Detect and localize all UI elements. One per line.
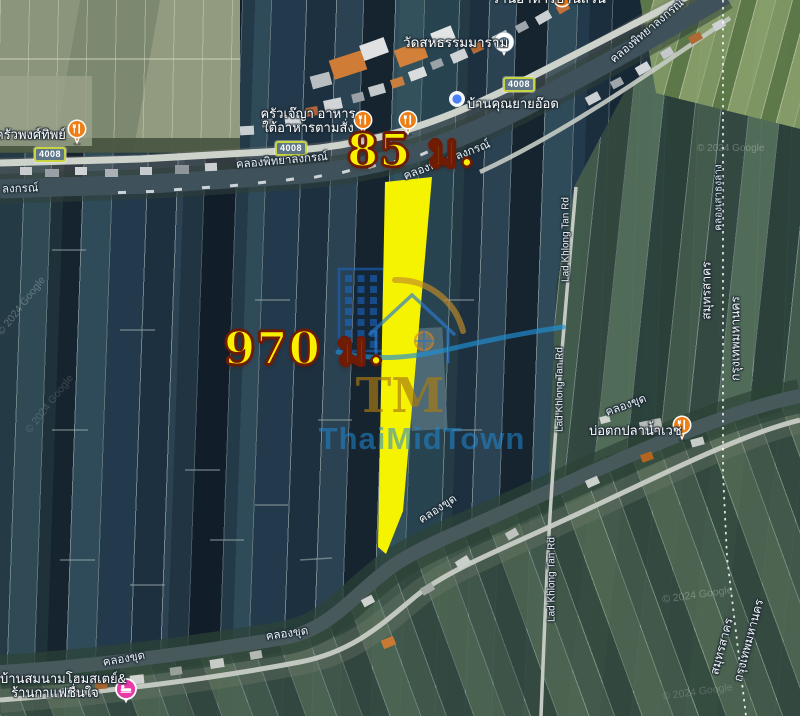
satellite-map[interactable]: ร้านอาหารบ้านสวน วัดสหธรรมมาราม บ้านคุณย… <box>0 0 800 716</box>
home-label[interactable]: บ้านคุณยายอ๊อด <box>467 93 559 114</box>
canal-label: คลองเสาธงล่าง <box>712 148 727 248</box>
temple-label[interactable]: วัดสหธรรมมาราม <box>403 31 508 53</box>
home-dot-marker-icon[interactable] <box>449 91 465 107</box>
restaurant-label[interactable]: ครัวเจ๊ญา อาหาร ใต้อาหารตามสั่ง <box>258 107 358 135</box>
road-label: Lad Khlong Tan Rd <box>561 190 572 290</box>
canal-label-fragment: ลงกรณ์ <box>2 179 39 198</box>
map-drawing-layer <box>0 0 800 716</box>
width-measurement: 85 ม. <box>347 114 476 186</box>
restaurant-label[interactable]: ครัวพงศ์ทิพย์ <box>0 124 66 145</box>
road-label: Lad Khlong Tan Rd <box>547 530 558 630</box>
route-badge-4008[interactable]: 4008 <box>503 77 535 92</box>
road-label: Lad Khlong Tan Rd <box>555 340 566 440</box>
homestay-label-line2: ร้านกาแฟชื่นใจ <box>0 686 110 700</box>
homestay-label-line1: บ้านสมนามโฮมสเตย์& <box>0 672 110 686</box>
fishing-pond-label[interactable]: บ่อตกปลาน้ำเวช <box>589 420 682 441</box>
route-badge-4008[interactable]: 4008 <box>34 147 66 162</box>
restaurant-label-line1: ครัวเจ๊ญา อาหาร <box>258 107 358 121</box>
province-label-bangkok: กรุงเทพมหานคร <box>727 279 746 399</box>
clipped-top-label[interactable]: ร้านอาหารบ้านสวน <box>492 0 606 9</box>
imagery-credit: © 2024 Google <box>697 143 764 154</box>
restaurant-label-line2: ใต้อาหารตามสั่ง <box>258 121 358 135</box>
province-label-samut-sakhon: สมุทรสาคร <box>698 241 717 341</box>
homestay-label[interactable]: บ้านสมนามโฮมสเตย์& ร้านกาแฟชื่นใจ <box>0 672 110 700</box>
restaurant-pin-icon[interactable] <box>68 120 85 145</box>
watermark-monogram: TM <box>352 368 448 424</box>
watermark-brand-name: ThaiMidTown <box>302 421 542 457</box>
